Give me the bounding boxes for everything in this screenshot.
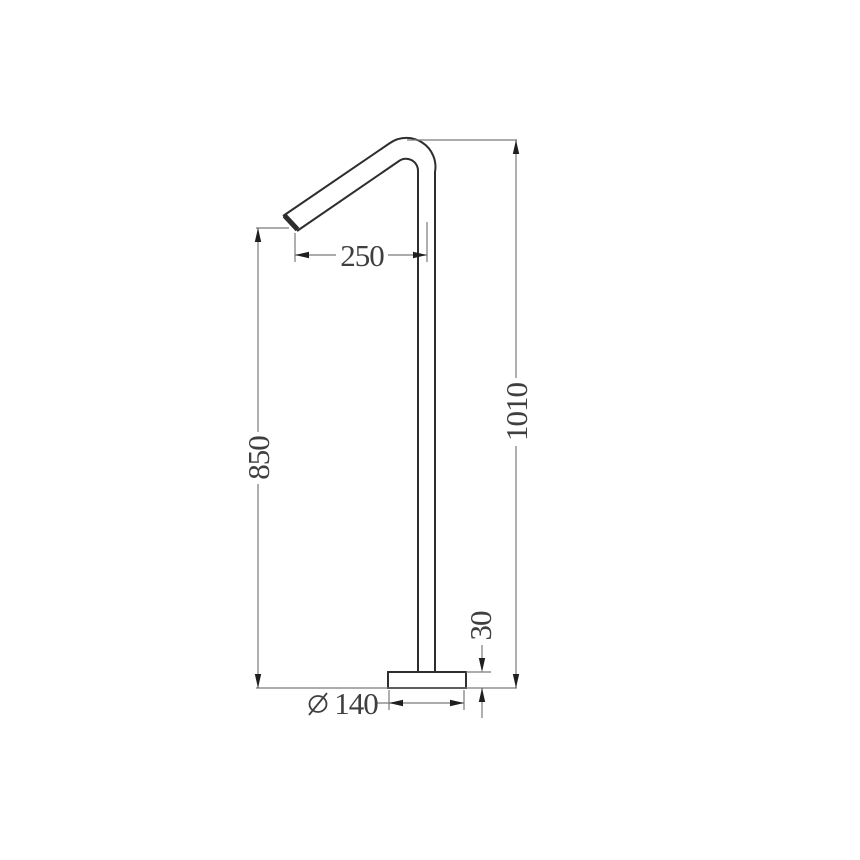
dim-base-thickness-arrow-down-icon [479,658,485,672]
dim-base-diameter-arrow-right-icon [450,700,464,706]
dim-outlet-height-arrow-down-icon [255,674,261,688]
dim-reach-arrow-right-icon [413,252,427,258]
base-plate [388,672,466,688]
dim-base-diameter-label: 140 [334,686,378,721]
dimension-labels: 250 850 1010 30 140 [241,238,534,721]
drawing-stage: 250 850 1010 30 140 [0,0,860,860]
dim-base-thickness-label: 30 [463,611,498,641]
part-lines [283,138,466,688]
dim-outlet-height-arrow-up-icon [255,228,261,242]
dim-outlet-height-label: 850 [241,436,276,480]
dim-reach-label: 250 [340,238,384,273]
dim-reach-arrow-left-icon [295,252,309,258]
dim-overall-height-label: 1010 [499,383,534,442]
diameter-icon [309,693,327,715]
technical-drawing-canvas: 250 850 1010 30 140 [0,0,860,860]
spout-outer-contour [283,138,435,672]
dim-overall-height-arrow-up-icon [513,140,519,154]
spout-inner-contour [297,159,418,672]
dim-base-thickness-arrow-up-icon [479,688,485,702]
dim-overall-height-arrow-down-icon [513,674,519,688]
dim-base-diameter-arrow-left-icon [389,700,403,706]
